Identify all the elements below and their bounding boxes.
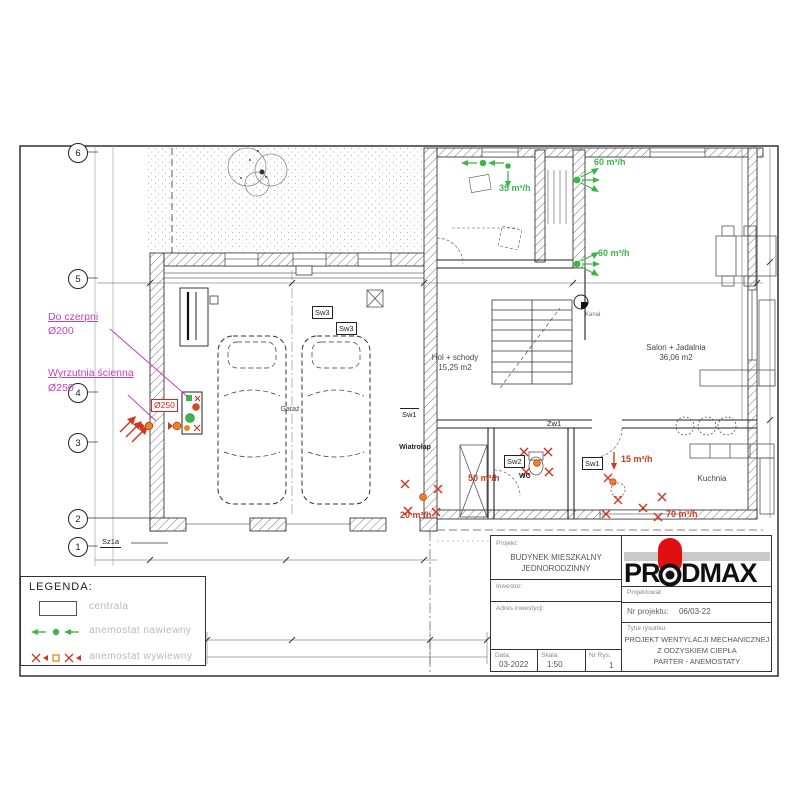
- grid-label: 4: [75, 388, 80, 399]
- annotation-intake: Do czerpni: [48, 312, 98, 324]
- project-name: BUDYNEK MIESZKALNY: [496, 553, 616, 562]
- duct-diameter-tag: Ø250: [151, 399, 178, 412]
- drawing-title: Z ODZYSKIEM CIEPŁA: [623, 646, 771, 655]
- airflow-label-exhaust: 20 m³/h: [400, 511, 432, 521]
- room-label-wc: WC: [519, 473, 531, 481]
- investor-label: Inwestor:: [496, 583, 522, 590]
- device-tag-sw2: Sw2: [504, 455, 525, 468]
- grid-label: 3: [75, 438, 80, 449]
- device-tag-sw1: Sw1: [400, 408, 419, 420]
- legend-label-exhaust: anemostat wywiewny: [89, 651, 192, 662]
- device-tag-sw1: Sw1: [582, 457, 603, 470]
- drawing-title: PARTER - ANEMOSTATY: [623, 657, 771, 666]
- room-label-vestibule: Wiatrołap: [392, 444, 438, 452]
- device-tag-sw3: Sw3: [312, 306, 333, 319]
- airflow-label-exhaust: 70 m³/h: [666, 510, 698, 520]
- legend-label-centrala: centrala: [89, 601, 129, 612]
- drawing-title-label: Tytuł rysunku:: [627, 625, 667, 632]
- device-tag-sw3: Sw3: [336, 322, 357, 335]
- annotation-intake-dia: Ø200: [48, 326, 74, 338]
- grid-bubble-2: 2: [68, 509, 88, 529]
- prodmax-logo-icon: [651, 534, 691, 590]
- sheet-no-value: 1: [609, 661, 613, 670]
- legend-box: LEGENDA: centrala anemostat nawiewny ane…: [20, 576, 206, 666]
- airflow-label-exhaust: 50 m³/h: [468, 474, 500, 484]
- project-name: JEDNORODZINNY: [496, 564, 616, 573]
- car-outline: [218, 336, 286, 504]
- airflow-label-supply: 35 m³/h: [499, 184, 531, 194]
- legend-title: LEGENDA:: [29, 581, 93, 593]
- grid-label: 1: [75, 542, 80, 553]
- room-label-garage: Garaż: [268, 406, 312, 414]
- scale-value: 1:50: [547, 660, 563, 669]
- supply-anemostat-legend-icon: [29, 625, 85, 639]
- grid-bubble-3: 3: [68, 433, 88, 453]
- terrain-texture: [146, 148, 435, 253]
- grid-label: 5: [75, 274, 80, 285]
- grid-label: 2: [75, 514, 80, 525]
- exhaust-anemostat-legend-icon: [29, 651, 85, 665]
- room-area-hall: 15,25 m2: [420, 364, 490, 373]
- project-no-label: Nr projektu:: [627, 607, 668, 616]
- drawing-title: PROJEKT WENTYLACJI MECHANICZNEJ: [623, 635, 771, 644]
- date-value: 03-2022: [499, 660, 528, 669]
- drawing-sheet: 6 5 4 3 2 1 Do czerpni Ø200 Wyrzutnia śc…: [0, 0, 800, 800]
- duct-note: Kanał: [585, 312, 600, 319]
- grid-bubble-5: 5: [68, 269, 88, 289]
- garage-equipment: [164, 266, 424, 346]
- room-label-salon: Salon + Jadalnia: [626, 344, 726, 353]
- annotation-outlet: Wyrzutnia ścienna: [48, 368, 134, 380]
- airflow-label-supply: 60 m³/h: [594, 158, 626, 168]
- room-label-kitchen: Kuchnia: [677, 475, 747, 484]
- room-area-salon: 36,06 m2: [626, 354, 726, 363]
- address-label: Adres inwestycji:: [496, 605, 544, 612]
- project-label: Projekt:: [496, 540, 518, 547]
- room-label-hall: Hol + schody: [420, 354, 490, 363]
- centrala-symbol-icon: [39, 601, 77, 616]
- project-no-value: 06/03-22: [679, 607, 711, 616]
- wall-exhaust-arrows-icon: [120, 416, 148, 442]
- date-label: Data:: [495, 652, 511, 659]
- logo-text-right: DMAX: [681, 558, 757, 589]
- duct-shaft-icon: [574, 295, 588, 309]
- scale-label: Skala:: [541, 652, 559, 659]
- device-tag-sz1a: Sz1a: [100, 536, 121, 548]
- airflow-label-exhaust: 15 m³/h: [621, 455, 653, 465]
- sheet-no-label: Nr Rys.: [589, 652, 611, 659]
- grid-label: 6: [75, 148, 80, 159]
- title-block: Projekt: BUDYNEK MIESZKALNY JEDNORODZINN…: [490, 535, 772, 672]
- grid-bubble-6: 6: [68, 143, 88, 163]
- stairs: [492, 300, 572, 388]
- airflow-label-supply: 60 m³/h: [598, 249, 630, 259]
- floor-plan-linework: [0, 0, 800, 800]
- grid-bubble-1: 1: [68, 537, 88, 557]
- supply-anemostat-icon: [461, 160, 504, 167]
- annotation-outlet-dia: Ø250: [48, 383, 74, 395]
- legend-label-supply: anemostat nawiewny: [89, 625, 191, 636]
- device-tag-zw1: Zw1: [545, 418, 563, 429]
- designer-label: Projektował:: [627, 589, 662, 596]
- car-outline: [302, 336, 370, 504]
